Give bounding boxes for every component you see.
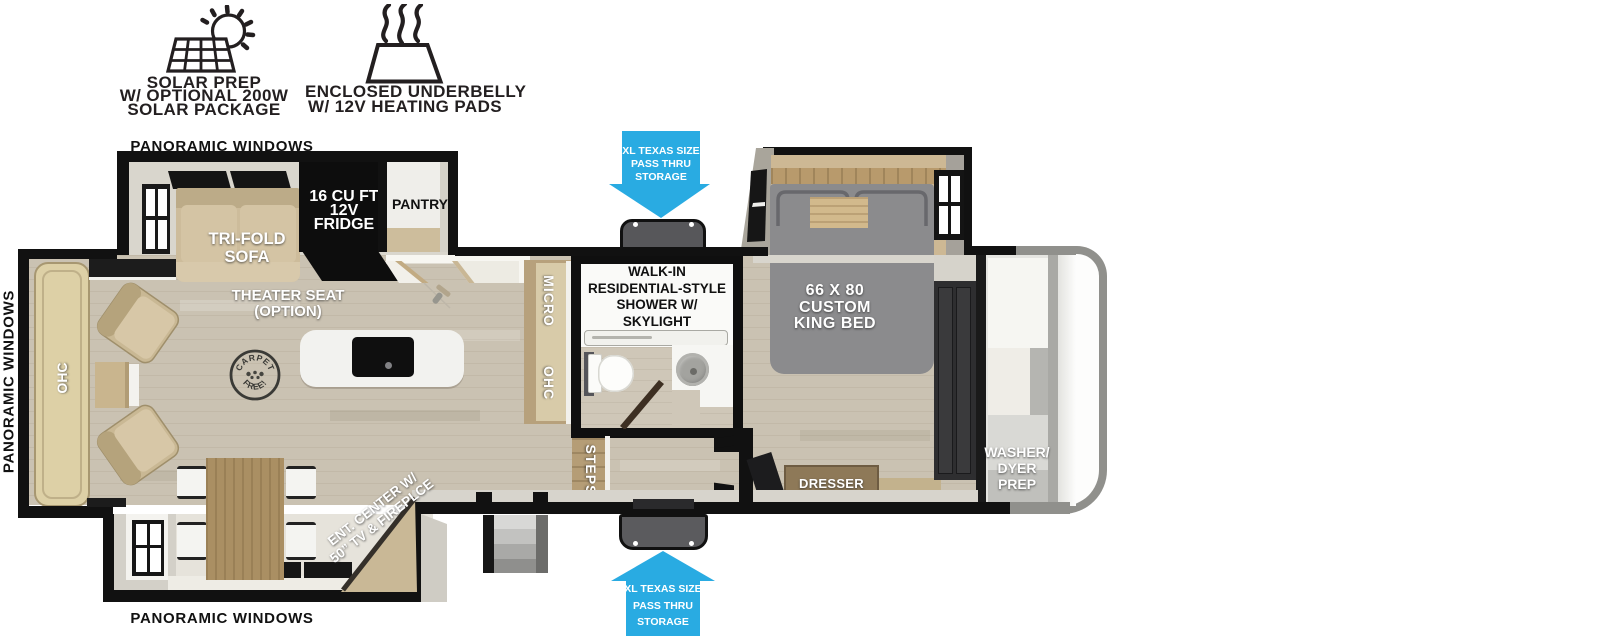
svg-text:XL TEXAS SIZE: XL TEXAS SIZE <box>622 145 699 157</box>
svg-text:XL TEXAS SIZE: XL TEXAS SIZE <box>624 583 701 595</box>
svg-text:STORAGE: STORAGE <box>635 171 687 183</box>
svg-text:PASS THRU: PASS THRU <box>631 158 691 170</box>
svg-text:PASS THRU: PASS THRU <box>633 600 693 612</box>
svg-text:STORAGE: STORAGE <box>637 616 689 628</box>
svg-text:FREE!: FREE! <box>241 378 269 392</box>
